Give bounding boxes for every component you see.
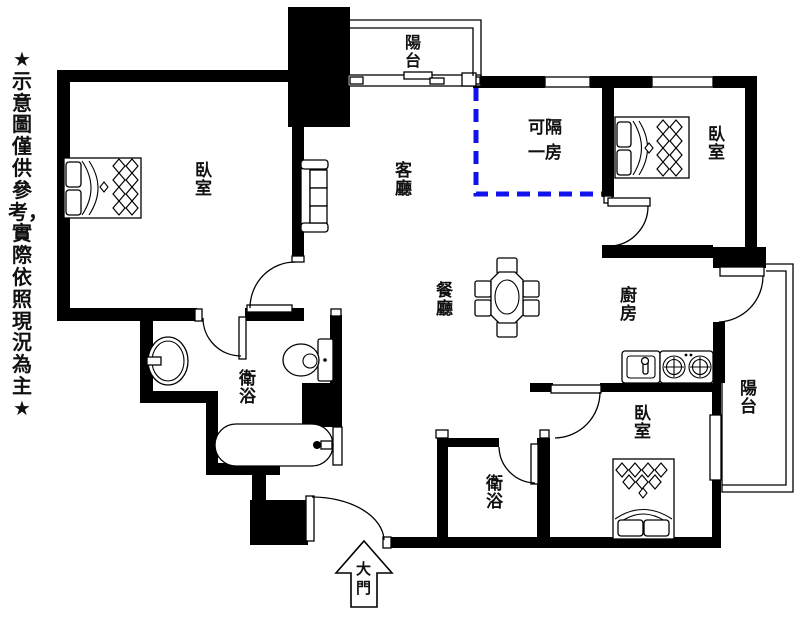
label-bathroom-guest: 衛浴 [485,475,504,511]
door-swing-icon [247,262,295,312]
label-kitchen: 廚房 [619,287,638,323]
bathtub-icon [215,424,333,466]
door-swing-icon [203,317,246,359]
sliding-door-icon [348,72,481,86]
sofa-icon [301,160,328,232]
dining-table-icon [475,258,539,337]
double-bed-icon [615,117,689,178]
kitchen-sink-icon [622,351,660,383]
window-icon [333,427,342,465]
label-living-room: 客廳 [394,162,413,198]
double-bed-icon [64,158,141,218]
label-bedroom-bottom: 臥室 [633,405,652,441]
door-swing-icon [608,198,650,246]
window-icon [545,77,590,87]
floor-plan-drawing [0,0,800,621]
double-bed-icon [613,459,674,539]
washbasin-icon [147,337,188,385]
door-swing-icon [719,267,764,322]
stove-icon [660,351,713,383]
disclaimer-text: ★示意圖僅供參考，實際依照現況為主★ [8,50,36,421]
label-balcony-top: 陽台 [404,35,422,71]
label-balcony-right: 陽台 [739,380,758,416]
window-icon [710,415,721,480]
label-dining-room: 餐廳 [435,282,454,318]
door-swing-icon [306,496,384,541]
label-partition-suggestion: 可隔一房 [524,115,566,165]
floor-plan: ★示意圖僅供參考，實際依照現況為主★ 陽台 可隔一房 客廳 臥室 臥室 餐廳 廚… [0,0,800,621]
window-icon [652,77,713,87]
door-swing-icon [551,385,601,438]
toilet-icon [283,339,333,381]
door-swing-icon [499,444,538,484]
label-bedroom-top-right: 臥室 [707,126,726,162]
label-main-entrance: 大門 [355,560,372,598]
label-bedroom-master: 臥室 [194,162,213,198]
label-bathroom-main: 衛浴 [238,370,257,406]
